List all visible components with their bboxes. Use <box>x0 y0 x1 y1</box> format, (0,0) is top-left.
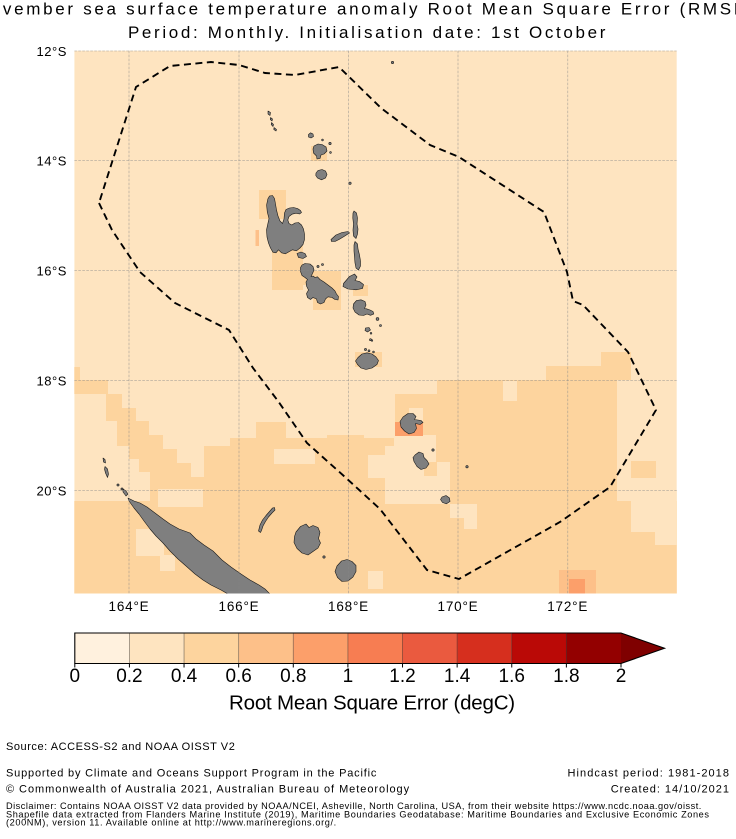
svg-text:0: 0 <box>70 666 81 687</box>
svg-text:1.8: 1.8 <box>553 666 579 687</box>
svg-text:166°E: 166°E <box>219 599 260 614</box>
svg-text:Period: Monthly. Initialisatio: Period: Monthly. Initialisation date: 1s… <box>128 23 608 42</box>
svg-text:0.6: 0.6 <box>225 666 251 687</box>
svg-text:18°S: 18°S <box>36 374 67 389</box>
svg-text:0.8: 0.8 <box>280 666 306 687</box>
svg-text:2: 2 <box>616 666 627 687</box>
svg-text:© Commonwealth of Australia 20: © Commonwealth of Australia 2021, Austra… <box>6 784 410 796</box>
svg-text:172°E: 172°E <box>547 599 588 614</box>
svg-text:Created: 14/10/2021: Created: 14/10/2021 <box>611 784 730 796</box>
svg-text:Hindcast period: 1981-2018: Hindcast period: 1981-2018 <box>568 768 730 780</box>
svg-text:1.4: 1.4 <box>444 666 471 687</box>
svg-text:170°E: 170°E <box>438 599 479 614</box>
svg-text:168°E: 168°E <box>328 599 369 614</box>
svg-text:(200NM), version 11. Available: (200NM), version 11. Available online at… <box>6 818 337 828</box>
svg-text:Source: ACCESS-S2 and NOAA OIS: Source: ACCESS-S2 and NOAA OISST V2 <box>6 741 235 753</box>
svg-text:Root Mean Square Error (degC): Root Mean Square Error (degC) <box>229 692 515 715</box>
svg-text:12°S: 12°S <box>36 44 67 59</box>
svg-text:November sea surface temperatu: November sea surface temperature anomaly… <box>0 0 736 19</box>
svg-text:16°S: 16°S <box>36 264 67 279</box>
svg-text:164°E: 164°E <box>109 599 150 614</box>
svg-text:20°S: 20°S <box>36 483 67 498</box>
svg-text:14°S: 14°S <box>36 154 67 169</box>
svg-text:1: 1 <box>343 666 354 687</box>
svg-text:1.6: 1.6 <box>499 666 525 687</box>
svg-text:1.2: 1.2 <box>389 666 415 687</box>
svg-text:Supported by Climate and Ocean: Supported by Climate and Oceans Support … <box>6 768 377 780</box>
svg-text:0.4: 0.4 <box>171 666 198 687</box>
svg-text:0.2: 0.2 <box>116 666 142 687</box>
